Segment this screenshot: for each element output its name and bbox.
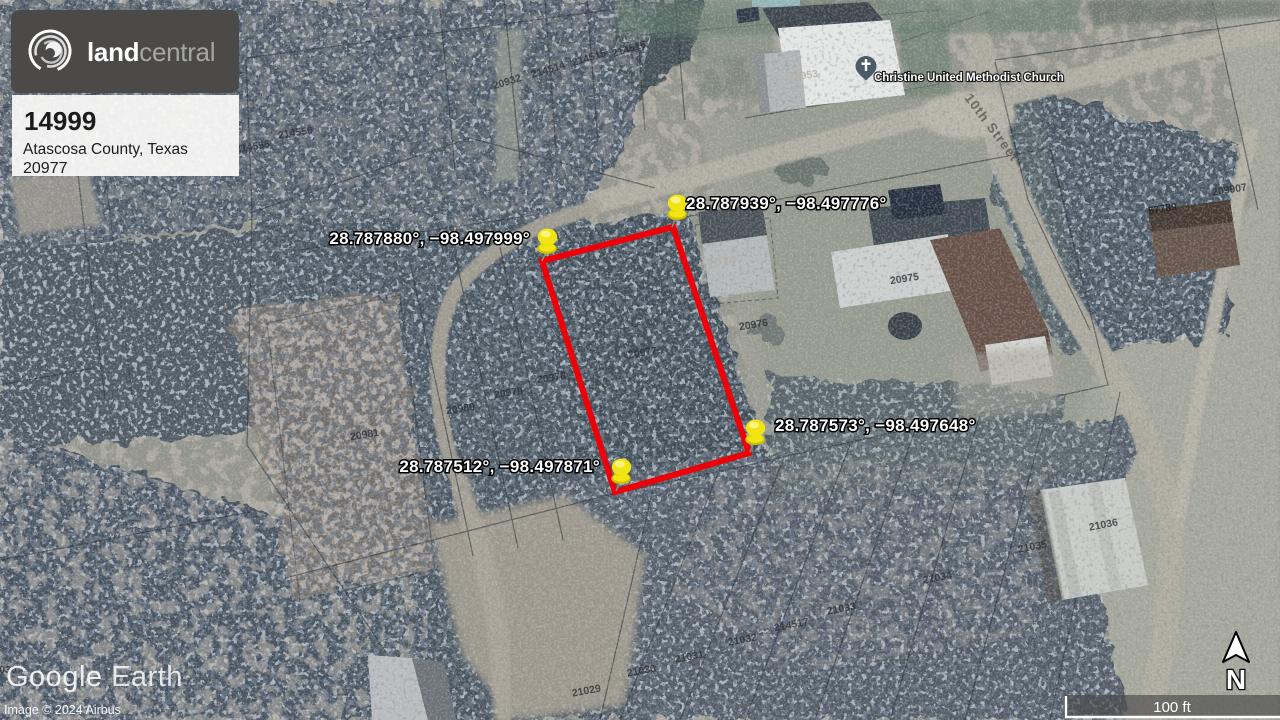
svg-text:28.787880°, −98.497999°: 28.787880°, −98.497999°	[329, 229, 530, 248]
svg-text:Image © 2024 Airbus: Image © 2024 Airbus	[4, 703, 121, 717]
svg-text:28.787573°, −98.497648°: 28.787573°, −98.497648°	[775, 416, 976, 435]
svg-text:N: N	[1226, 664, 1246, 695]
svg-text:28.787939°, −98.497776°: 28.787939°, −98.497776°	[686, 194, 887, 213]
svg-text:Christine United Methodist Chu: Christine United Methodist Church	[874, 72, 1064, 84]
svg-text:14999: 14999	[24, 106, 96, 136]
svg-text:landcentral: landcentral	[87, 37, 215, 67]
svg-text:Google Earth: Google Earth	[6, 661, 183, 693]
svg-text:100 ft: 100 ft	[1153, 699, 1191, 716]
svg-text:Atascosa County, Texas: Atascosa County, Texas	[23, 141, 188, 158]
svg-text:28.787512°, −98.497871°: 28.787512°, −98.497871°	[399, 457, 600, 476]
svg-text:20977: 20977	[23, 160, 68, 177]
